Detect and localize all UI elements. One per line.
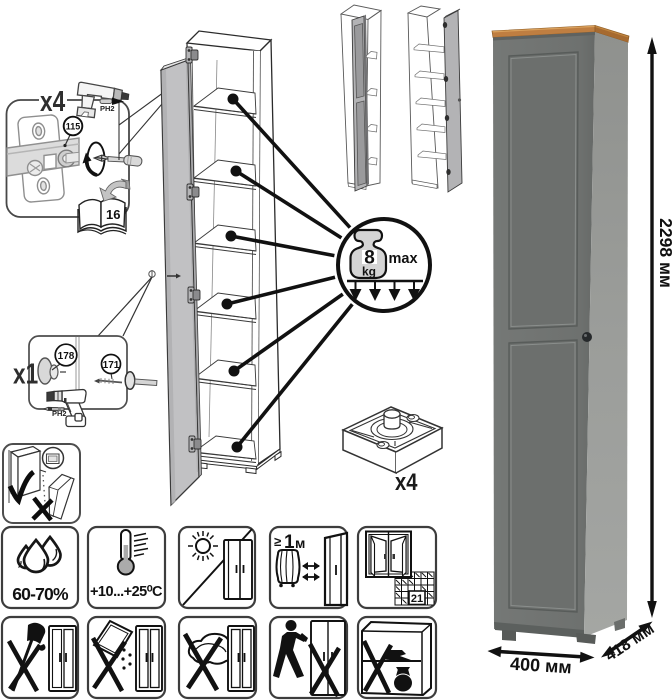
svg-text:418 мм: 418 мм: [602, 621, 657, 665]
svg-text:178: 178: [58, 351, 75, 362]
svg-text:21: 21: [411, 593, 423, 605]
svg-text:м: м: [295, 535, 305, 551]
svg-text:16: 16: [106, 207, 120, 222]
svg-text:≥: ≥: [274, 534, 281, 549]
svg-text:PH2: PH2: [100, 104, 115, 113]
svg-text:+10...+25⁰C: +10...+25⁰C: [90, 584, 163, 600]
svg-text:kg: kg: [362, 265, 376, 279]
svg-text:x4: x4: [40, 84, 66, 117]
svg-text:171: 171: [103, 360, 120, 371]
svg-text:60-70%: 60-70%: [12, 584, 69, 604]
svg-text:400 мм: 400 мм: [509, 654, 572, 678]
svg-text:2298 мм: 2298 мм: [656, 218, 672, 288]
svg-text:x1: x1: [13, 357, 38, 390]
svg-text:max: max: [388, 251, 417, 267]
svg-text:PH2: PH2: [52, 409, 67, 418]
svg-text:x4: x4: [395, 468, 418, 495]
svg-text:115: 115: [66, 122, 81, 132]
